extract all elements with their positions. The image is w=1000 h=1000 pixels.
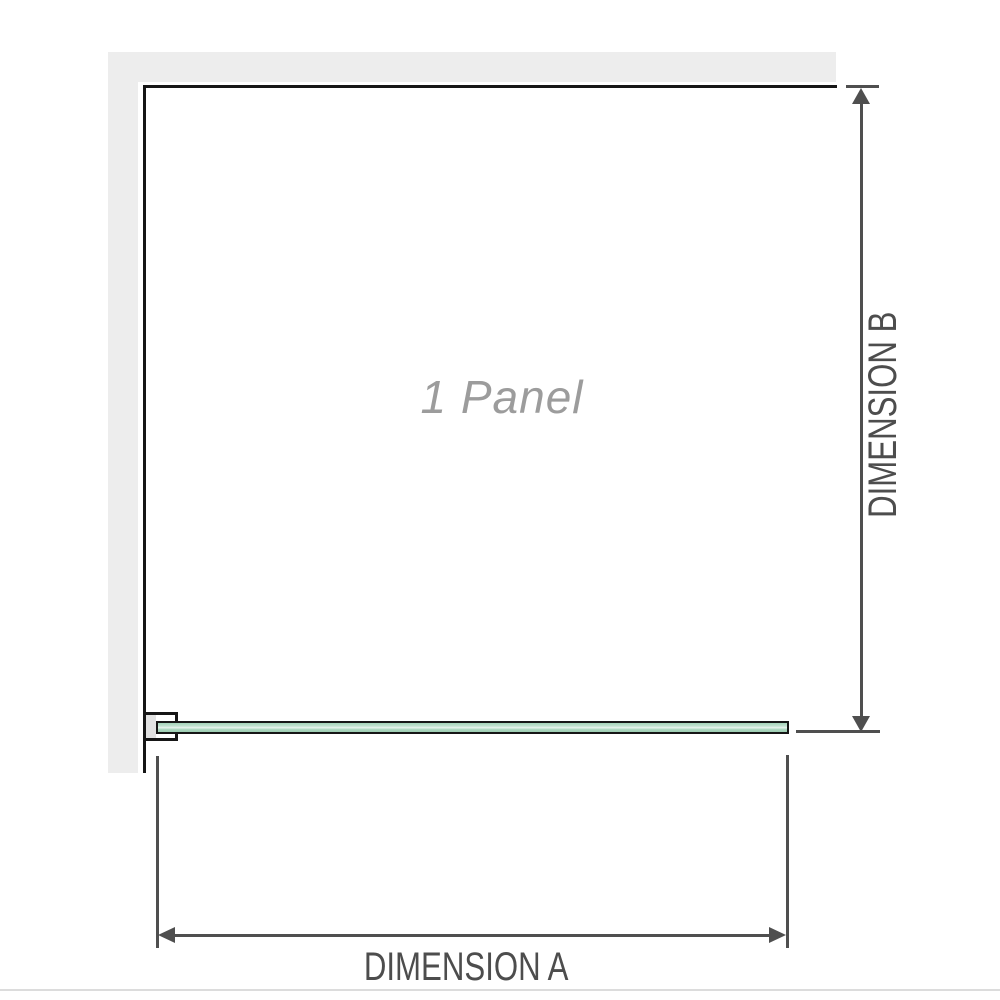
dimension-a-label-text: DIMENSION A	[364, 945, 569, 989]
dim-a-extension-right	[786, 755, 789, 948]
wall-left-segment	[108, 52, 138, 773]
dim-a-arrow-right-icon	[769, 927, 786, 943]
wall-top-segment	[108, 52, 836, 82]
bottom-separator-line	[0, 989, 1000, 991]
diagram-canvas: 1 Panel DIMENSION B DIMENSION A	[0, 0, 1000, 1000]
glass-panel	[156, 721, 789, 734]
panel-outline-top	[143, 85, 837, 88]
dimension-a-label: DIMENSION A	[266, 945, 666, 989]
panel-area-label: 1 Panel	[352, 372, 652, 422]
dim-b-arrow-down-icon	[852, 716, 870, 732]
dim-b-arrow-up-icon	[852, 88, 870, 104]
panel-outline-left	[143, 85, 146, 773]
wall-bracket-gap	[146, 715, 156, 738]
dim-a-line	[166, 934, 778, 937]
dimension-b-label-text: DIMENSION B	[861, 312, 905, 518]
dimension-b-label: DIMENSION B	[861, 265, 905, 565]
dim-a-arrow-left-icon	[158, 927, 175, 943]
dim-a-extension-left	[156, 756, 159, 948]
